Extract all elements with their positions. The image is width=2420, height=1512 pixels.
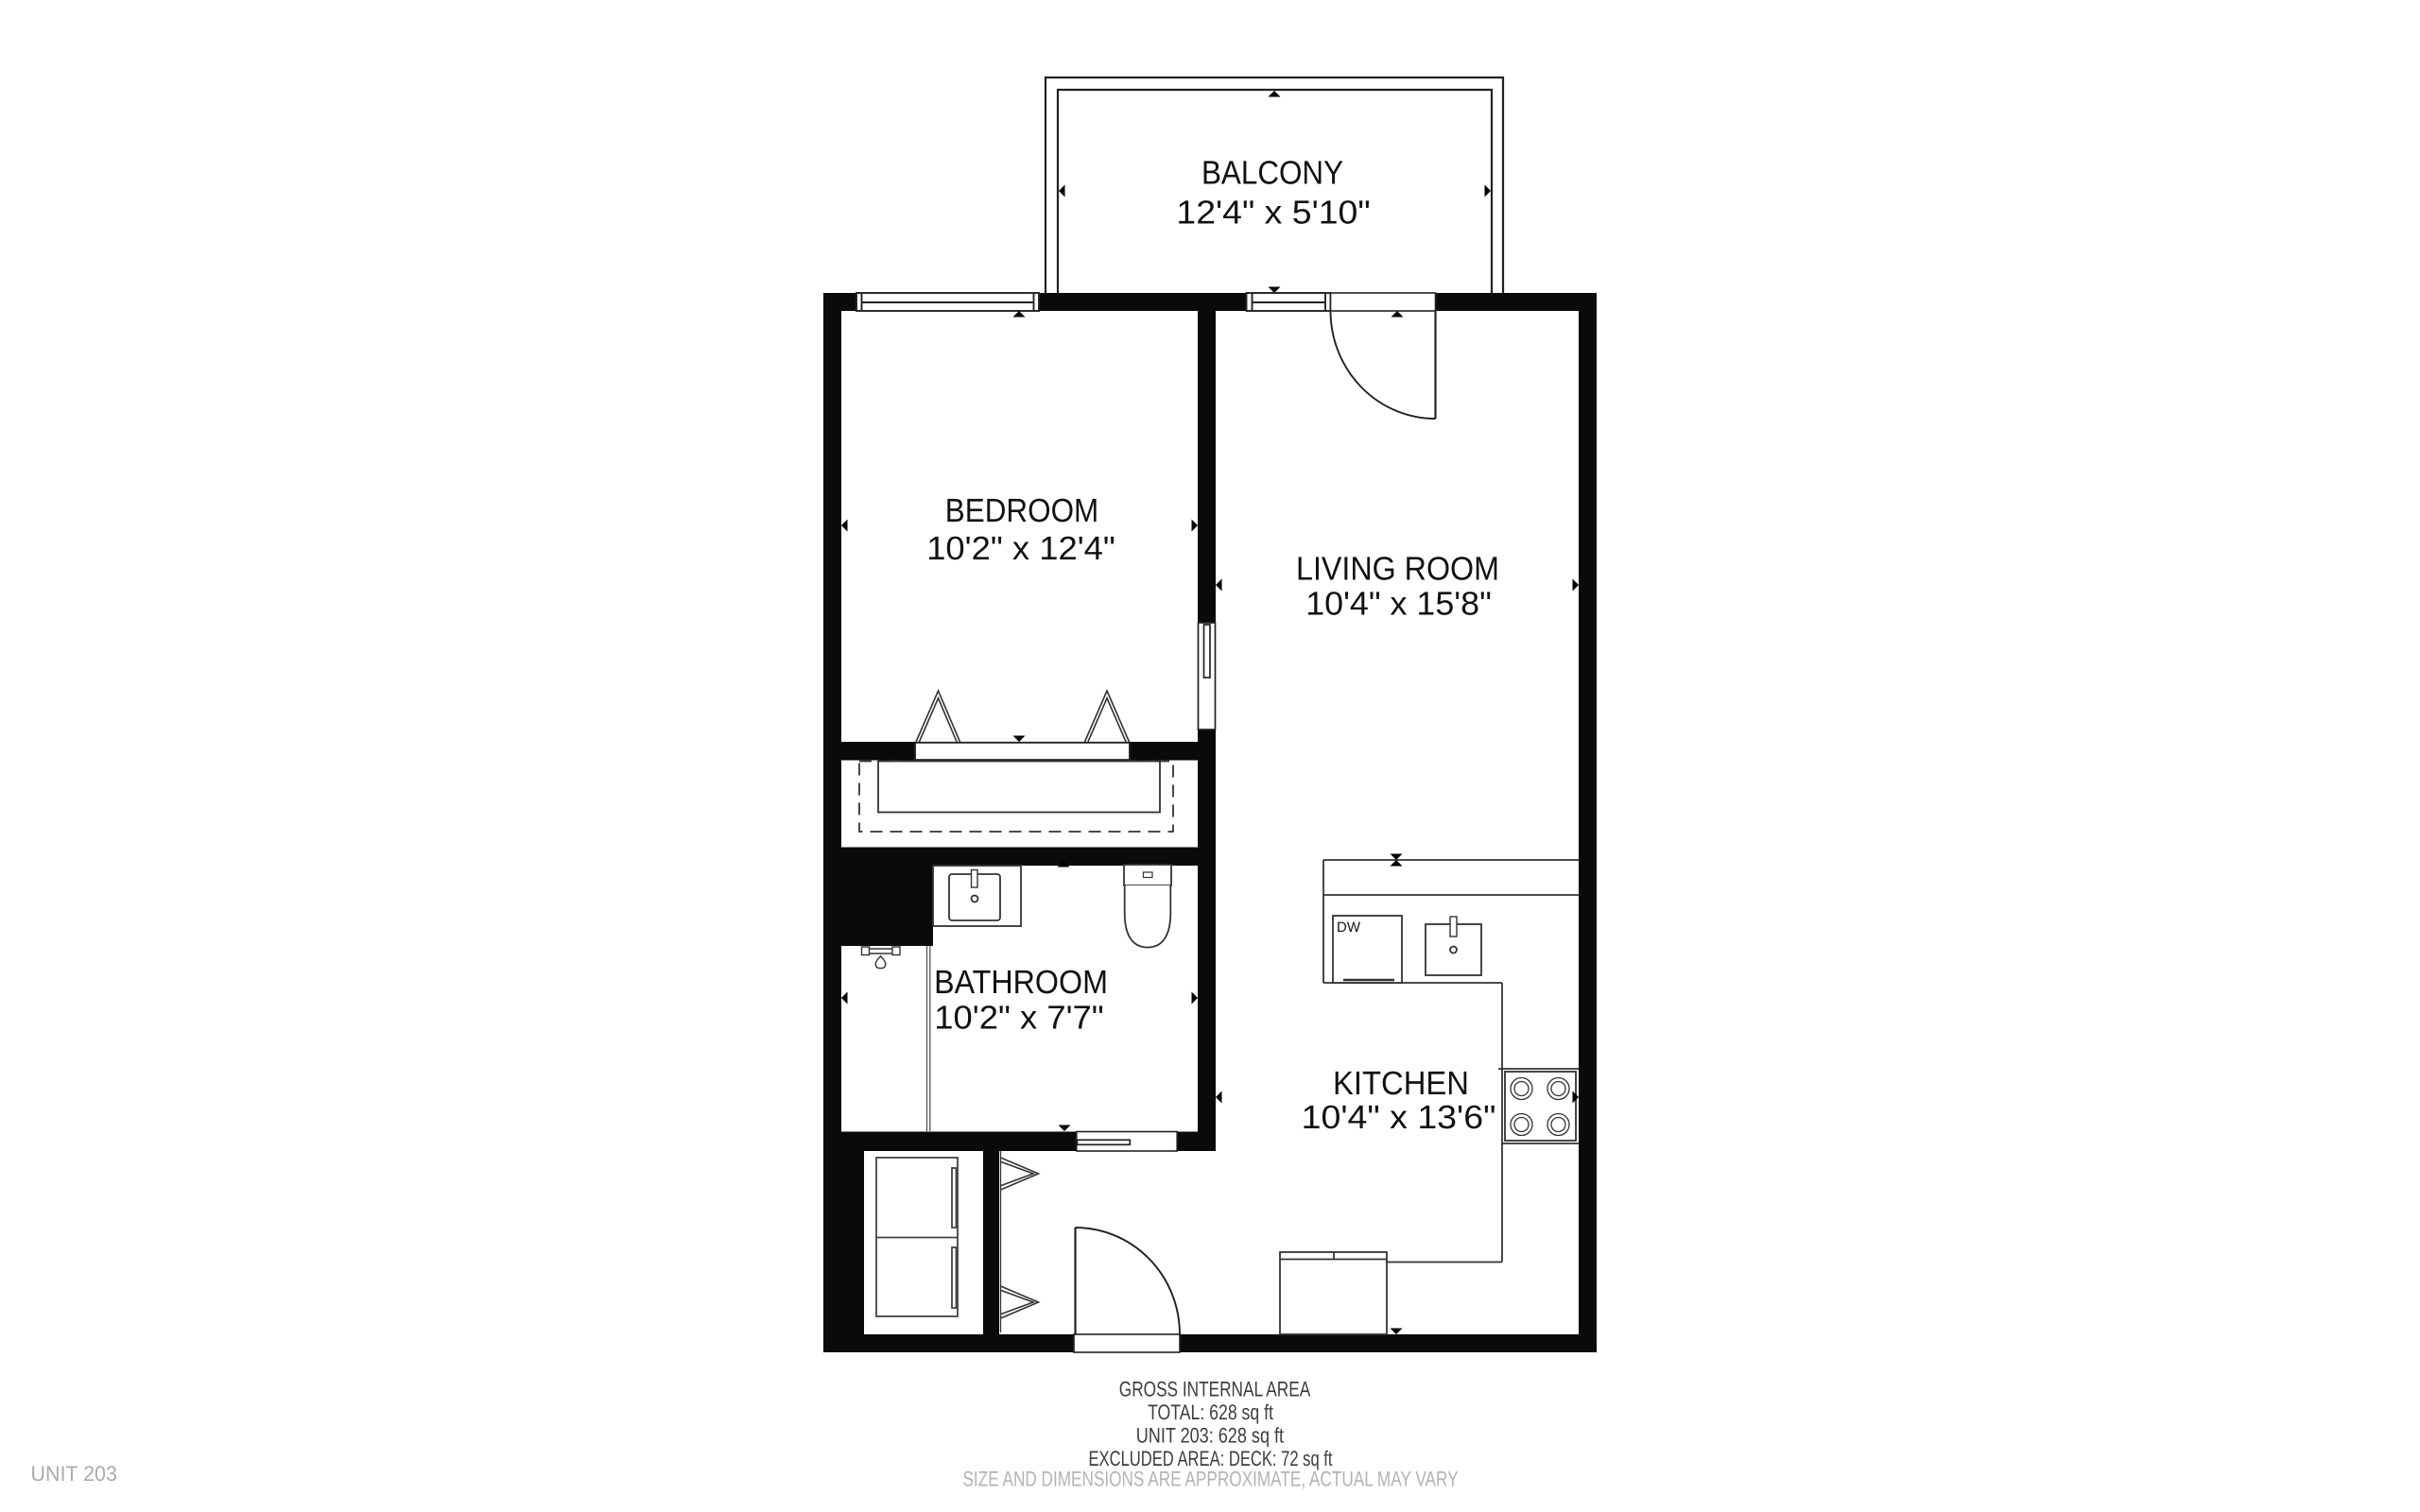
svg-text:DW: DW (1337, 919, 1361, 936)
svg-text:10'4" x 13'6": 10'4" x 13'6" (1302, 1099, 1496, 1136)
svg-text:SIZE AND DIMENSIONS ARE APPROX: SIZE AND DIMENSIONS ARE APPROXIMATE, ACT… (962, 1468, 1458, 1491)
svg-text:GROSS INTERNAL AREA: GROSS INTERNAL AREA (1119, 1378, 1310, 1401)
svg-text:UNIT 203: 628 sq ft: UNIT 203: 628 sq ft (1136, 1424, 1285, 1448)
svg-text:KITCHEN: KITCHEN (1333, 1065, 1469, 1102)
svg-text:TOTAL: 628 sq ft: TOTAL: 628 sq ft (1148, 1400, 1273, 1424)
svg-text:UNIT 203: UNIT 203 (31, 1462, 117, 1486)
svg-text:10'4" x 15'8": 10'4" x 15'8" (1305, 586, 1492, 623)
svg-text:BALCONY: BALCONY (1201, 155, 1343, 192)
svg-text:12'4" x 5'10": 12'4" x 5'10" (1176, 195, 1370, 232)
svg-text:LIVING ROOM: LIVING ROOM (1296, 551, 1499, 588)
svg-text:BEDROOM: BEDROOM (945, 492, 1098, 529)
svg-text:BATHROOM: BATHROOM (934, 964, 1108, 1001)
svg-text:10'2" x 12'4": 10'2" x 12'4" (926, 530, 1115, 567)
svg-text:10'2" x 7'7": 10'2" x 7'7" (934, 1000, 1103, 1037)
